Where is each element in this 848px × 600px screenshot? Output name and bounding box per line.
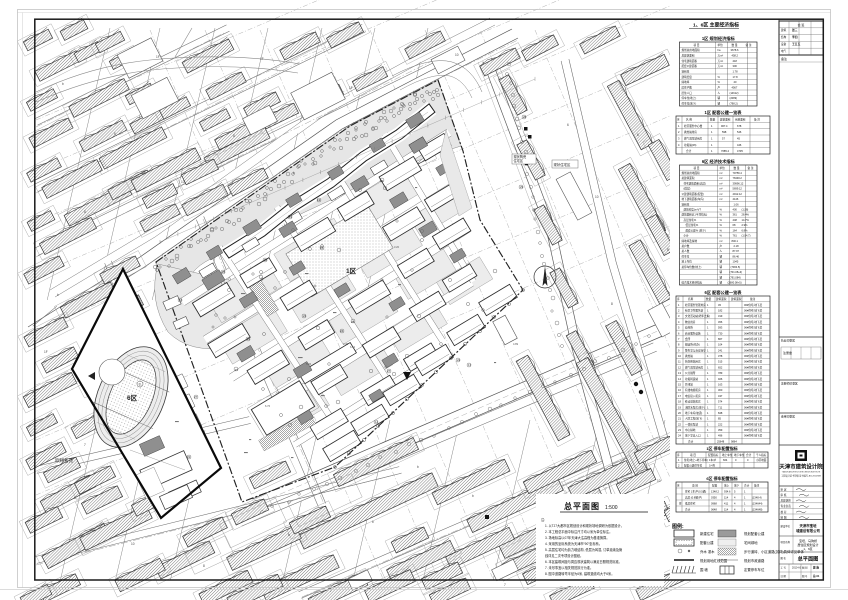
svg-text:总停车位数(地上): 总停车位数(地上) xyxy=(682,265,702,269)
svg-text:日 期: 日 期 xyxy=(781,574,787,578)
svg-text:社区服务中心楼: 社区服务中心楼 xyxy=(684,124,703,128)
svg-text:总建筑面积: 总建筑面积 xyxy=(682,54,695,58)
svg-text:1区 配套公建一览表: 1区 配套公建一览表 xyxy=(705,109,743,116)
svg-text:配套公建% (地下): 配套公建% (地下) xyxy=(686,228,706,232)
svg-text:住宅区: 住宅区 xyxy=(514,158,524,163)
svg-text:地下: 地下 xyxy=(734,483,740,487)
svg-text:1.78: 1.78 xyxy=(733,70,739,74)
svg-text:711: 711 xyxy=(718,405,723,409)
svg-text:27: 27 xyxy=(194,395,198,399)
svg-text:户: 户 xyxy=(720,244,723,248)
svg-text:备注: 备注 xyxy=(750,297,756,301)
svg-text:2.18: 2.18 xyxy=(734,244,740,248)
svg-text:注册师印章区: 注册师印章区 xyxy=(781,382,798,386)
svg-text:8. 图中道路转弯半径为6米, 建筑退线均大于6米。: 8. 图中道路转弯半径为6米, 建筑退线均大于6米。 xyxy=(545,571,614,576)
svg-text:16: 16 xyxy=(320,246,324,250)
svg-text:垃圾站(26): 垃圾站(26) xyxy=(684,143,697,147)
svg-text:4735: 4735 xyxy=(737,149,743,153)
svg-text:1F: 1F xyxy=(156,55,160,59)
svg-text:住宅 1车/户(0.5辆): 住宅 1车/户(0.5辆) xyxy=(685,489,706,493)
svg-text:b: b xyxy=(57,293,59,297)
svg-text:图例:: 图例: xyxy=(672,523,684,530)
svg-text:12: 12 xyxy=(289,215,293,219)
svg-text:17: 17 xyxy=(468,363,472,367)
svg-text:182: 182 xyxy=(718,309,723,313)
svg-text:1348.2: 1348.2 xyxy=(711,489,719,493)
svg-text:10: 10 xyxy=(181,180,185,184)
svg-text:宅间绿地: 宅间绿地 xyxy=(744,540,758,545)
svg-text:城建设有限公司: 城建设有限公司 xyxy=(796,528,820,533)
svg-text:开闭站: 开闭站 xyxy=(685,383,693,387)
svg-text:综合技术经济指标: 综合技术经济指标 xyxy=(682,281,703,285)
svg-text:06#住宅-地下层: 06#住宅-地下层 xyxy=(744,377,763,381)
svg-text:926: 926 xyxy=(718,377,723,381)
svg-text:0.4车: 0.4车 xyxy=(709,464,716,468)
svg-text:1区 停车配置指标: 1区 停车配置指标 xyxy=(706,445,737,451)
svg-text:598: 598 xyxy=(722,130,727,134)
svg-text:8: 8 xyxy=(233,134,235,138)
svg-text:住: 住 xyxy=(679,501,682,505)
svg-text:地下建筑面积(车库): 地下建筑面积(车库) xyxy=(682,197,705,201)
svg-text:数 量: 数 量 xyxy=(734,166,740,170)
svg-text:39996.12: 39996.12 xyxy=(733,181,744,185)
svg-text:437: 437 xyxy=(718,394,723,398)
svg-text:21: 21 xyxy=(247,337,251,341)
svg-text:16: 16 xyxy=(179,298,183,302)
svg-text:万m²: 万m² xyxy=(718,65,724,68)
svg-text:6.76: 6.76 xyxy=(265,404,271,408)
svg-text:8: 8 xyxy=(667,248,669,252)
svg-text:7: 7 xyxy=(504,583,506,587)
svg-text:制 图: 制 图 xyxy=(781,515,787,519)
svg-text:居住户数: 居住户数 xyxy=(682,86,693,90)
svg-text:m²: m² xyxy=(720,188,723,191)
svg-text:5. 高层住宅均为剪力墙结构, 低层为砖混, 订单延续及管: 5. 高层住宅均为剪力墙结构, 低层为砖混, 订单延续及管 xyxy=(545,547,622,552)
svg-text:114: 114 xyxy=(724,507,729,511)
svg-text:06#住宅-地下层: 06#住宅-地下层 xyxy=(744,343,763,347)
svg-text:114: 114 xyxy=(724,495,729,499)
svg-text:停车位: 停车位 xyxy=(682,255,690,259)
svg-text:(14612): (14612) xyxy=(730,91,739,95)
svg-text:万m²: 万m² xyxy=(718,55,724,58)
svg-text:7: 7 xyxy=(84,443,86,447)
svg-text:06#住宅-地下层: 06#住宅-地下层 xyxy=(744,314,763,318)
svg-text:线详见二次专项设计图纸。: 线详见二次专项设计图纸。 xyxy=(545,553,583,558)
svg-text:(2680.08+5): (2680.08+5) xyxy=(728,281,742,285)
svg-text:辆: 辆 xyxy=(720,265,723,269)
svg-text:(低层): (低层) xyxy=(684,187,691,191)
svg-text:数量: 数量 xyxy=(710,118,716,122)
svg-text:10: 10 xyxy=(131,542,135,546)
svg-text:359: 359 xyxy=(718,428,723,432)
svg-text:项 目: 项 目 xyxy=(692,483,698,487)
svg-text:注:: 注: xyxy=(541,517,545,522)
svg-text:序: 序 xyxy=(677,297,680,301)
svg-text:合计: 合计 xyxy=(744,483,750,487)
svg-text:06#住宅-地下层: 06#住宅-地下层 xyxy=(744,428,763,432)
svg-text:项目名称: 项目名称 xyxy=(781,540,791,544)
svg-text:6. 本区建筑间距与周边现状建筑以满足日照规范标准。: 6. 本区建筑间距与周边现状建筑以满足日照规范标准。 xyxy=(545,559,622,564)
svg-text:678: 678 xyxy=(737,124,742,128)
svg-text:06#住宅-地下层: 06#住宅-地下层 xyxy=(744,303,763,307)
svg-text:(798.2): (798.2) xyxy=(730,102,738,106)
svg-text:欣翔名苑: 欣翔名苑 xyxy=(55,457,73,464)
svg-text:79756.4: 79756.4 xyxy=(733,171,743,175)
svg-text:序: 序 xyxy=(677,118,680,122)
svg-text:会 签: 会 签 xyxy=(798,22,805,27)
svg-text:垃圾转运站: 垃圾转运站 xyxy=(685,377,698,381)
svg-text:28: 28 xyxy=(264,258,268,262)
svg-text:热交换站用房: 热交换站用房 xyxy=(685,360,701,364)
svg-text:(701.08+3): (701.08+3) xyxy=(730,270,743,274)
svg-text:10: 10 xyxy=(455,53,459,57)
svg-text:电气: 电气 xyxy=(781,49,787,53)
svg-text:配套公建: 配套公建 xyxy=(700,540,714,545)
svg-text:地上: 地上 xyxy=(724,483,730,487)
svg-text:b: b xyxy=(372,520,374,524)
svg-text:458.2: 458.2 xyxy=(732,54,739,58)
svg-text:06#住宅-地下层: 06#住宅-地下层 xyxy=(744,360,763,364)
svg-text:(791.084): (791.084) xyxy=(730,275,741,279)
svg-text:87.97: 87.97 xyxy=(733,249,740,253)
svg-text:天津市宝坻: 天津市宝坻 xyxy=(800,523,818,528)
svg-text:2. 本工程总平面中标注尺寸均以米为单位标注。: 2. 本工程总平面中标注尺寸均以米为单位标注。 xyxy=(545,529,612,534)
svg-text:结构: 结构 xyxy=(781,35,787,39)
svg-text:3. 场地标高以07年天津大沽高程为基准换算。: 3. 场地标高以07年天津大沽高程为基准换算。 xyxy=(545,535,609,540)
svg-text:19: 19 xyxy=(317,198,321,202)
svg-text:3678.6: 3678.6 xyxy=(731,48,739,52)
svg-text:446: 446 xyxy=(737,143,742,147)
svg-text:19: 19 xyxy=(380,179,384,183)
svg-text:22: 22 xyxy=(457,358,461,362)
svg-text:29: 29 xyxy=(523,115,527,119)
svg-text:配置指标: 配置指标 xyxy=(708,453,719,457)
svg-text:(134644): (134644) xyxy=(752,501,763,505)
svg-text:m²: m² xyxy=(720,182,723,185)
svg-text:496: 496 xyxy=(718,434,723,438)
svg-text:21: 21 xyxy=(303,314,307,318)
svg-text:容积率: 容积率 xyxy=(682,70,690,74)
svg-text:76393.2: 76393.2 xyxy=(733,176,743,180)
svg-text:规划总用地面积: 规划总用地面积 xyxy=(682,171,701,175)
svg-text:6.8%: 6.8% xyxy=(742,228,749,232)
svg-text:人: 人 xyxy=(720,249,723,253)
svg-text:(1348.4): (1348.4) xyxy=(752,495,762,499)
svg-text:06#住宅-地下层: 06#住宅-地下层 xyxy=(744,371,763,375)
svg-text:燃气调压站用房: 燃气调压站用房 xyxy=(685,365,704,369)
svg-text:6区 经济技术指标: 6区 经济技术指标 xyxy=(702,158,736,165)
svg-text:06#住宅-地下层: 06#住宅-地下层 xyxy=(744,411,763,415)
svg-text:消防水泵房(地下): 消防水泵房(地下) xyxy=(685,405,705,409)
svg-text:容积率: 容积率 xyxy=(682,202,690,206)
svg-text:241: 241 xyxy=(718,348,723,352)
svg-text:(7084.5): (7084.5) xyxy=(731,265,741,269)
svg-text:4912.12: 4912.12 xyxy=(733,192,743,196)
svg-text:乔木 灌木: 乔木 灌木 xyxy=(700,549,715,554)
svg-text:(1:54.7): (1:54.7) xyxy=(742,234,751,238)
svg-text:合计: 合计 xyxy=(688,439,694,443)
svg-text:人: 人 xyxy=(718,91,721,95)
svg-text:593: 593 xyxy=(718,326,723,330)
svg-text:b: b xyxy=(417,465,419,469)
svg-text:6区 配套公建一览表: 6区 配套公建一览表 xyxy=(705,289,743,296)
svg-text:辆: 辆 xyxy=(718,102,721,106)
svg-text:14.7%: 14.7% xyxy=(742,218,750,222)
svg-text:06#住宅-地下层: 06#住宅-地下层 xyxy=(744,354,763,358)
svg-text:序: 序 xyxy=(677,453,680,457)
svg-text:411: 411 xyxy=(724,501,729,505)
svg-text:6.62: 6.62 xyxy=(350,345,356,349)
svg-text:1045: 1045 xyxy=(733,260,739,264)
svg-text:967.4: 967.4 xyxy=(721,124,728,128)
svg-text:06#住宅-地下层: 06#住宅-地下层 xyxy=(744,388,763,392)
svg-text:3.20: 3.20 xyxy=(394,245,400,249)
svg-text:761: 761 xyxy=(733,234,738,238)
svg-text:围 墙: 围 墙 xyxy=(700,567,708,572)
svg-text:8: 8 xyxy=(74,496,76,500)
svg-text:新建住宅: 新建住宅 xyxy=(700,531,714,536)
svg-text:26: 26 xyxy=(351,320,355,324)
svg-text:建筑密度: 建筑密度 xyxy=(682,75,693,79)
svg-text:物业用房: 物业用房 xyxy=(685,320,696,324)
svg-text:备 注: 备 注 xyxy=(748,166,754,170)
svg-text:6区: 6区 xyxy=(127,394,138,402)
svg-text:9864: 9864 xyxy=(731,439,737,443)
svg-text:合计: 合计 xyxy=(685,507,691,511)
svg-text:4.89: 4.89 xyxy=(513,342,519,346)
svg-text:06#住宅-地下层: 06#住宅-地下层 xyxy=(744,348,763,352)
svg-text:2010-A3: 2010-A3 xyxy=(792,567,802,570)
svg-text:辆: 辆 xyxy=(720,270,723,274)
svg-text:m²: m² xyxy=(720,198,723,201)
svg-text:工 号: 工 号 xyxy=(781,566,787,570)
svg-text:361: 361 xyxy=(733,213,738,217)
svg-text:8: 8 xyxy=(84,210,86,214)
svg-text:163: 163 xyxy=(718,383,723,387)
svg-text:地上车位: 地上车位 xyxy=(682,260,693,264)
svg-text:建筑面积: 建筑面积 xyxy=(720,118,731,122)
svg-text:17.8: 17.8 xyxy=(733,75,739,79)
svg-text:建筑面积: 建筑面积 xyxy=(731,297,742,301)
svg-text:3.45: 3.45 xyxy=(343,342,349,346)
svg-text:664: 664 xyxy=(723,458,728,462)
svg-text:地上车位: 地上车位 xyxy=(722,453,733,457)
svg-text:序: 序 xyxy=(677,483,680,487)
svg-text:06#住宅-地下层: 06#住宅-地下层 xyxy=(744,337,763,341)
svg-text:项 目: 项 目 xyxy=(690,453,696,457)
svg-text:164: 164 xyxy=(733,228,738,232)
svg-text:86.46: 86.46 xyxy=(733,255,740,259)
svg-text:1、6区: 1、6区 xyxy=(803,547,812,551)
svg-text:辆: 辆 xyxy=(720,260,723,264)
svg-text:万m²: 万m² xyxy=(718,60,724,63)
svg-text:06#住宅-地下层: 06#住宅-地下层 xyxy=(744,394,763,398)
svg-text:总平面图: 总平面图 xyxy=(564,501,600,511)
svg-text:06#住宅-地下层: 06#住宅-地下层 xyxy=(744,326,763,330)
svg-text:1. 以TJ7大都市区规划设计和现状场地调研为依据设计。: 1. 以TJ7大都市区规划设计和现状场地调研为依据设计。 xyxy=(545,523,624,528)
svg-text:b: b xyxy=(62,82,64,86)
svg-text:m²: m² xyxy=(720,177,723,180)
svg-text:张三: 张三 xyxy=(792,28,798,32)
svg-text:652: 652 xyxy=(718,365,723,369)
svg-text:b: b xyxy=(293,171,295,175)
svg-text:26: 26 xyxy=(222,270,226,274)
svg-text:319: 319 xyxy=(718,314,723,318)
svg-text:单位: 单位 xyxy=(718,43,724,47)
svg-text:0648: 0648 xyxy=(711,507,717,511)
svg-text:天津市建筑设计院: 天津市建筑设计院 xyxy=(779,463,823,471)
svg-text:TIANJIN ARCHITECTURE DESIGN IN: TIANJIN ARCHITECTURE DESIGN INSTITUTE xyxy=(782,471,821,474)
svg-text:数 量: 数 量 xyxy=(732,43,738,47)
svg-text:515: 515 xyxy=(718,360,723,364)
svg-text:规划市政道路: 规划市政道路 xyxy=(744,558,765,563)
svg-text:建 施: 建 施 xyxy=(813,566,819,570)
svg-text:m²: m² xyxy=(720,193,723,196)
svg-text:步行道砖、小区道路(另详)具体详见单体: 步行道砖、小区道路(另详)具体详见单体 xyxy=(744,549,805,554)
svg-text:7: 7 xyxy=(605,487,607,491)
svg-text:(2089): (2089) xyxy=(730,96,738,100)
svg-text:执业印章区: 执业印章区 xyxy=(781,339,795,343)
svg-text:备注: 备注 xyxy=(754,483,760,487)
svg-text:m²: m² xyxy=(720,172,723,175)
svg-text:06#住宅-地下层: 06#住宅-地下层 xyxy=(744,309,763,313)
svg-text:备注: 备注 xyxy=(781,56,787,61)
svg-text:校 对: 校 对 xyxy=(781,510,787,514)
svg-text:546: 546 xyxy=(737,130,742,134)
svg-text:(134648): (134648) xyxy=(752,507,763,511)
svg-text:备 注: 备 注 xyxy=(746,43,752,47)
svg-text:3: 3 xyxy=(139,383,141,387)
svg-text:邮政所(代办): 邮政所(代办) xyxy=(685,343,700,347)
svg-text:378: 378 xyxy=(718,354,723,358)
svg-text:公建建筑面积(配套): 公建建筑面积(配套) xyxy=(682,192,705,196)
svg-text:25648: 25648 xyxy=(717,439,725,443)
svg-text:0350: 0350 xyxy=(711,495,717,499)
svg-text:审 定: 审 定 xyxy=(781,487,787,491)
svg-text:总人数: 总人数 xyxy=(682,249,690,253)
svg-text:(1:28): (1:28) xyxy=(742,208,749,212)
svg-text:图 号: 图 号 xyxy=(802,574,808,578)
svg-text:绿地率: 绿地率 xyxy=(682,80,690,84)
svg-text:24: 24 xyxy=(340,329,344,333)
svg-text:27: 27 xyxy=(387,369,391,373)
svg-text:户: 户 xyxy=(718,86,721,90)
svg-text:m²: m² xyxy=(720,240,723,243)
svg-text:17: 17 xyxy=(235,368,239,372)
svg-text:846.1: 846.1 xyxy=(732,239,739,243)
svg-text:辆: 辆 xyxy=(720,281,723,285)
svg-text:定置停车车位: 定置停车车位 xyxy=(744,567,765,572)
svg-text:换热站: 换热站 xyxy=(685,354,693,358)
svg-text:住宅建筑面积: 住宅建筑面积 xyxy=(682,59,698,63)
svg-text:总-01: 总-01 xyxy=(813,574,820,578)
svg-text:现状住宅区: 现状住宅区 xyxy=(554,162,572,167)
svg-text:06#住宅-地下层: 06#住宅-地下层 xyxy=(744,417,763,421)
svg-text:06#住宅-地下层: 06#住宅-地下层 xyxy=(744,400,763,404)
svg-text:29: 29 xyxy=(520,185,524,189)
svg-text:用地面积: 用地面积 xyxy=(735,118,746,122)
svg-text:06#住宅-地下层: 06#住宅-地下层 xyxy=(744,434,763,438)
svg-text:辆: 辆 xyxy=(720,275,723,279)
svg-text:0968: 0968 xyxy=(711,501,717,505)
svg-text:8: 8 xyxy=(611,302,613,306)
svg-text:06#住宅-地下层: 06#住宅-地下层 xyxy=(744,320,763,324)
svg-text:配置: 配置 xyxy=(712,483,718,487)
svg-text:王五五: 王五五 xyxy=(792,42,801,46)
svg-text:合计: 合计 xyxy=(686,149,692,153)
svg-text:1F: 1F xyxy=(349,86,353,90)
svg-text:1、6区 主要经济指标: 1、6区 主要经济指标 xyxy=(693,22,739,29)
svg-text:设备: 设备 xyxy=(781,42,787,46)
svg-text:配套公建停车位: 配套公建停车位 xyxy=(684,464,703,468)
svg-text:警务室与治安岗亭: 警务室与治安岗亭 xyxy=(685,348,706,352)
svg-text:高层:(0.8辆/户): 高层:(0.8辆/户) xyxy=(685,495,702,499)
svg-text:4567: 4567 xyxy=(732,86,738,90)
svg-text:6: 6 xyxy=(567,123,569,127)
svg-text:名 称: 名 称 xyxy=(686,118,692,122)
svg-text:5699.12: 5699.12 xyxy=(733,187,743,191)
svg-text:名称: 名称 xyxy=(688,297,694,301)
svg-text:电信接入机房: 电信接入机房 xyxy=(685,394,701,398)
svg-text:28.4%: 28.4% xyxy=(742,213,750,217)
svg-text:居住人口: 居住人口 xyxy=(682,91,693,95)
svg-text:住宅(地上+地下停车): 住宅(地上+地下停车) xyxy=(684,458,708,462)
svg-text:建筑面积比 (平均指标): 建筑面积比 (平均指标) xyxy=(682,213,708,217)
svg-text:789: 789 xyxy=(718,371,723,375)
svg-text:104: 104 xyxy=(718,343,723,347)
svg-text:图 别: 图 别 xyxy=(802,566,808,570)
svg-text:配套公建面积: 配套公建面积 xyxy=(682,64,698,68)
svg-text:b: b xyxy=(472,494,474,498)
svg-text:审 核: 审 核 xyxy=(781,493,787,497)
svg-text:社区卫生服务站: 社区卫生服务站 xyxy=(685,309,704,313)
svg-text:300: 300 xyxy=(733,64,738,68)
svg-text:图 名: 图 名 xyxy=(781,556,787,560)
svg-text:一体化泵站: 一体化泵站 xyxy=(685,422,698,426)
svg-text:10: 10 xyxy=(595,195,599,199)
svg-text:高层住宅%: 高层住宅% xyxy=(684,218,697,222)
svg-text:地下车位: 地下车位 xyxy=(734,453,745,457)
svg-text:400: 400 xyxy=(733,208,738,212)
svg-text:会所: 会所 xyxy=(685,337,691,341)
svg-text:李四: 李四 xyxy=(791,35,798,39)
svg-text:8: 8 xyxy=(203,564,205,568)
svg-text:低层住宅%: 低层住宅% xyxy=(686,223,699,227)
svg-text:总建筑面积: 总建筑面积 xyxy=(682,176,695,180)
svg-text:换热站用房: 换热站用房 xyxy=(684,130,697,134)
svg-text:6区 停车配置指标: 6区 停车配置指标 xyxy=(706,475,737,481)
svg-text:1区: 1区 xyxy=(346,267,357,275)
svg-text:低层住宅: 低层住宅 xyxy=(685,501,696,505)
svg-text:建筑: 建筑 xyxy=(781,28,787,32)
svg-text:会审印章区: 会审印章区 xyxy=(781,415,795,419)
svg-text:规划总用地面积: 规划总用地面积 xyxy=(682,48,701,52)
svg-text:1F: 1F xyxy=(44,350,48,354)
svg-text:规划用地红线范围: 规划用地红线范围 xyxy=(700,558,728,563)
svg-text:06#住宅-地下层: 06#住宅-地下层 xyxy=(744,365,763,369)
svg-text:1区 规划经济指标: 1区 规划经济指标 xyxy=(702,35,736,42)
svg-text:规划配套公建: 规划配套公建 xyxy=(744,531,765,536)
svg-text:1:500: 1:500 xyxy=(605,505,618,511)
svg-text:住宅建筑面积(高层): 住宅建筑面积(高层) xyxy=(684,181,707,185)
svg-text:幼托所: 幼托所 xyxy=(685,326,693,330)
svg-text:6: 6 xyxy=(114,132,116,136)
svg-text:4146: 4146 xyxy=(733,197,739,201)
svg-text:注册章: 注册章 xyxy=(783,350,792,355)
svg-text:7: 7 xyxy=(627,429,629,433)
svg-text:专业负责: 专业负责 xyxy=(781,504,792,508)
svg-text:06#住宅-地下层: 06#住宅-地下层 xyxy=(744,405,763,409)
